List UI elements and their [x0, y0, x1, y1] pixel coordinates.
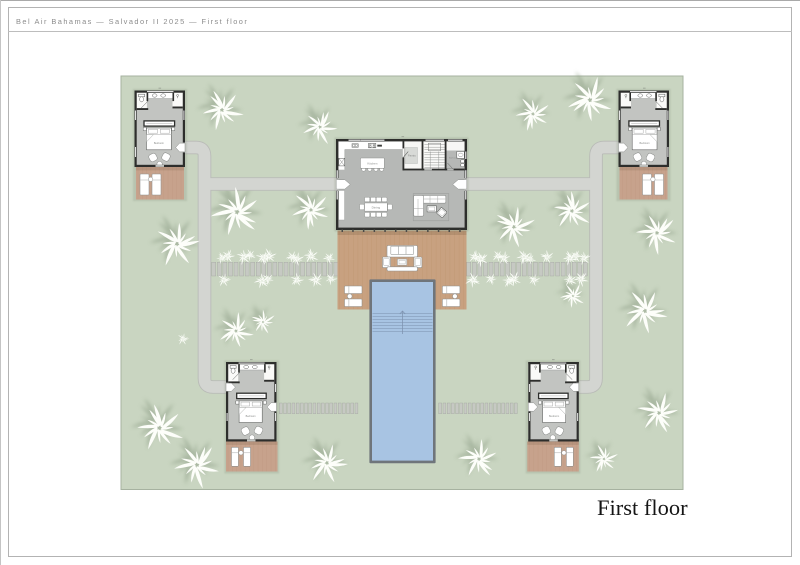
svg-text:Bathroom: Bathroom — [449, 157, 458, 160]
svg-text:Bedroom: Bedroom — [246, 415, 256, 418]
svg-text:Bedroom: Bedroom — [549, 415, 559, 418]
svg-text:Dining: Dining — [372, 205, 381, 209]
svg-text:Pantry: Pantry — [408, 154, 417, 158]
svg-text:Kitchen: Kitchen — [367, 161, 377, 165]
svg-text:Bedroom: Bedroom — [640, 142, 650, 145]
svg-text:Bedroom: Bedroom — [154, 142, 164, 145]
